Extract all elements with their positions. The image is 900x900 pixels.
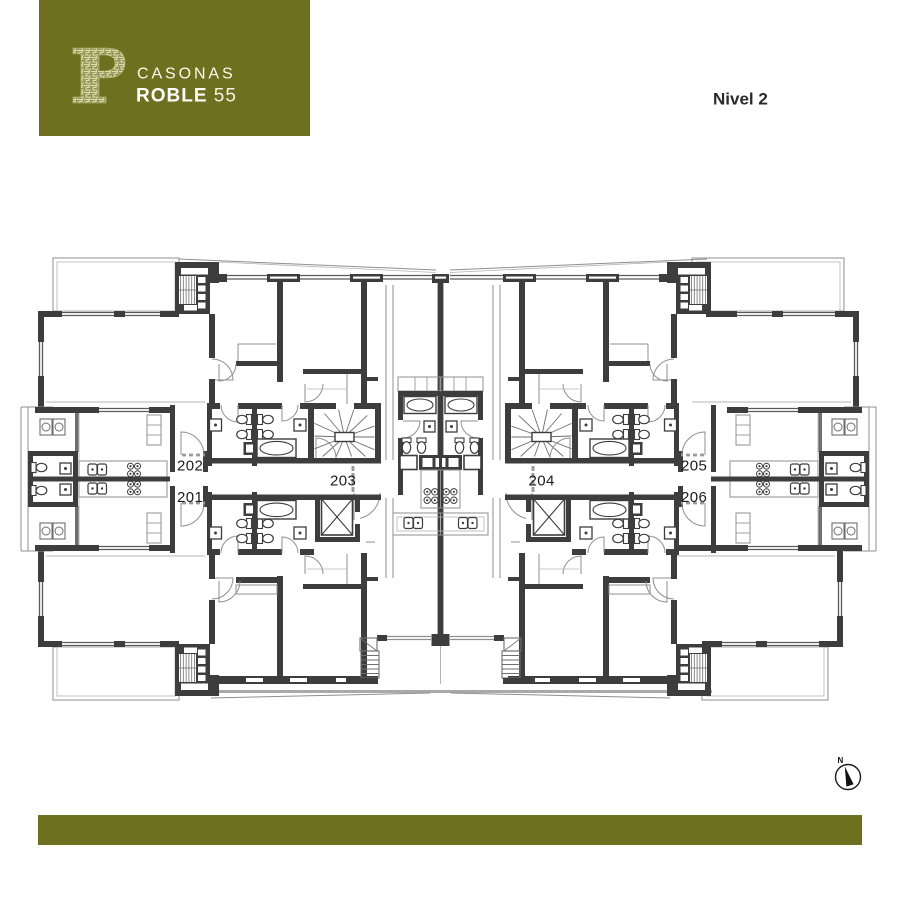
svg-text:CASONAS: CASONAS xyxy=(137,66,236,83)
svg-text:202: 202 xyxy=(177,458,203,475)
svg-text:203: 203 xyxy=(330,473,356,490)
svg-text:N: N xyxy=(838,756,844,765)
svg-text:206: 206 xyxy=(681,489,707,506)
svg-text:204: 204 xyxy=(529,473,555,490)
svg-text:Nivel 2: Nivel 2 xyxy=(713,90,768,109)
svg-text:ROBLE 55: ROBLE 55 xyxy=(136,86,237,107)
svg-text:205: 205 xyxy=(681,458,707,475)
svg-text:201: 201 xyxy=(177,489,203,506)
